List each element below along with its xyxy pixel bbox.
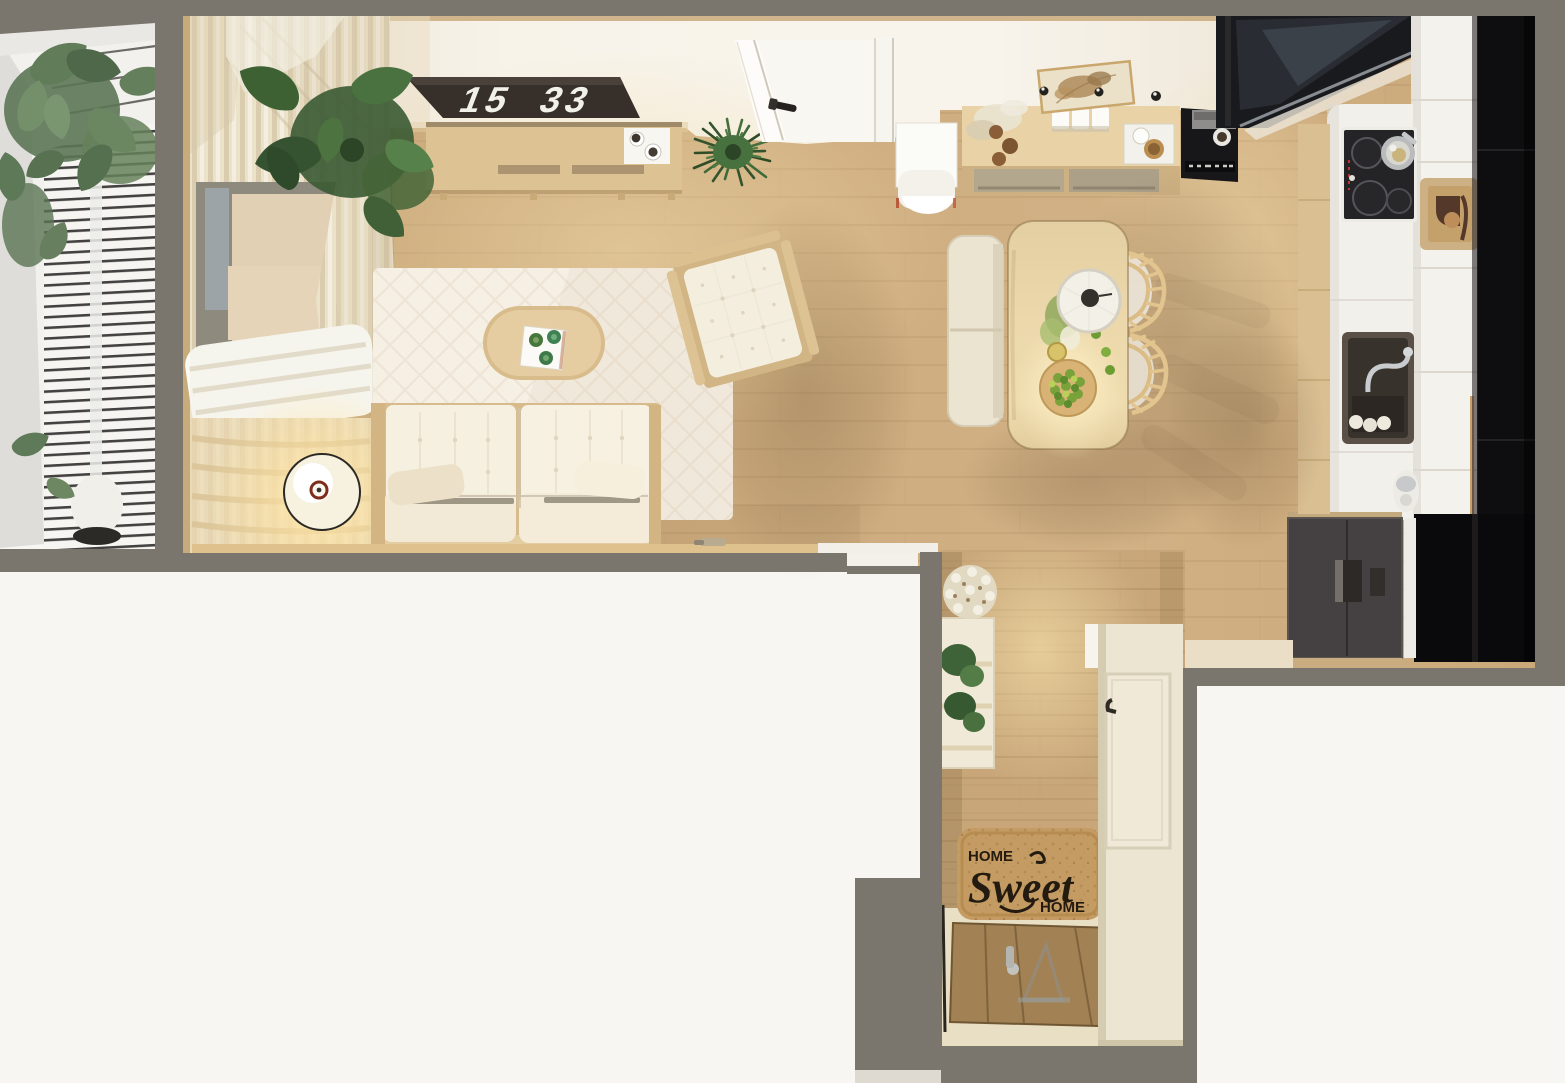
- svg-text:HOME: HOME: [1040, 899, 1085, 916]
